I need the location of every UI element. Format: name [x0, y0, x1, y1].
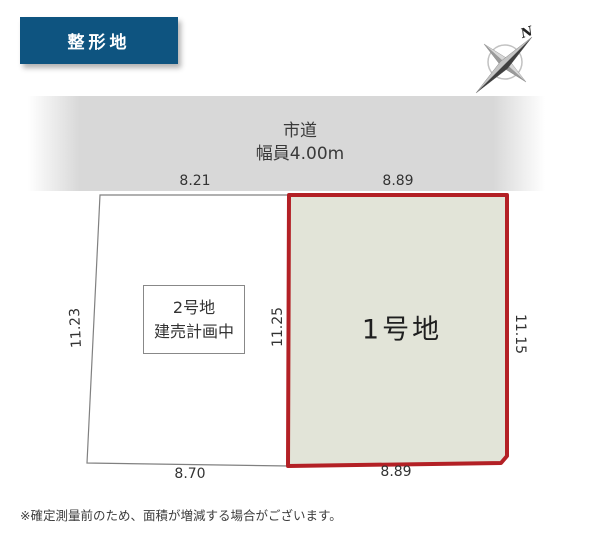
dim-plot2-bottom: 8.70: [174, 466, 205, 482]
plot2-name: 2号地: [173, 296, 215, 320]
dim-plot1-right: 11.15: [512, 314, 528, 354]
dim-plot1-bottom: 8.89: [380, 464, 411, 480]
plot2-label-box: 2号地 建売計画中: [143, 285, 245, 354]
survey-disclaimer: ※確定測量前のため、面積が増減する場合がございます。: [20, 505, 342, 524]
dim-plot1-top: 8.89: [382, 173, 413, 189]
dim-plot1-left: 11.25: [270, 307, 286, 347]
plot-outlines: [0, 0, 600, 539]
dim-plot2-top: 8.21: [179, 173, 210, 189]
dim-plot2-left: 11.23: [67, 308, 85, 349]
plot2-status: 建売計画中: [154, 320, 234, 344]
plot1-name: 1号地: [362, 308, 442, 347]
land-plot-diagram: 整形地 N 市道 幅員4.00m 8.21 8.89 11.23 11.25 1…: [0, 0, 600, 539]
